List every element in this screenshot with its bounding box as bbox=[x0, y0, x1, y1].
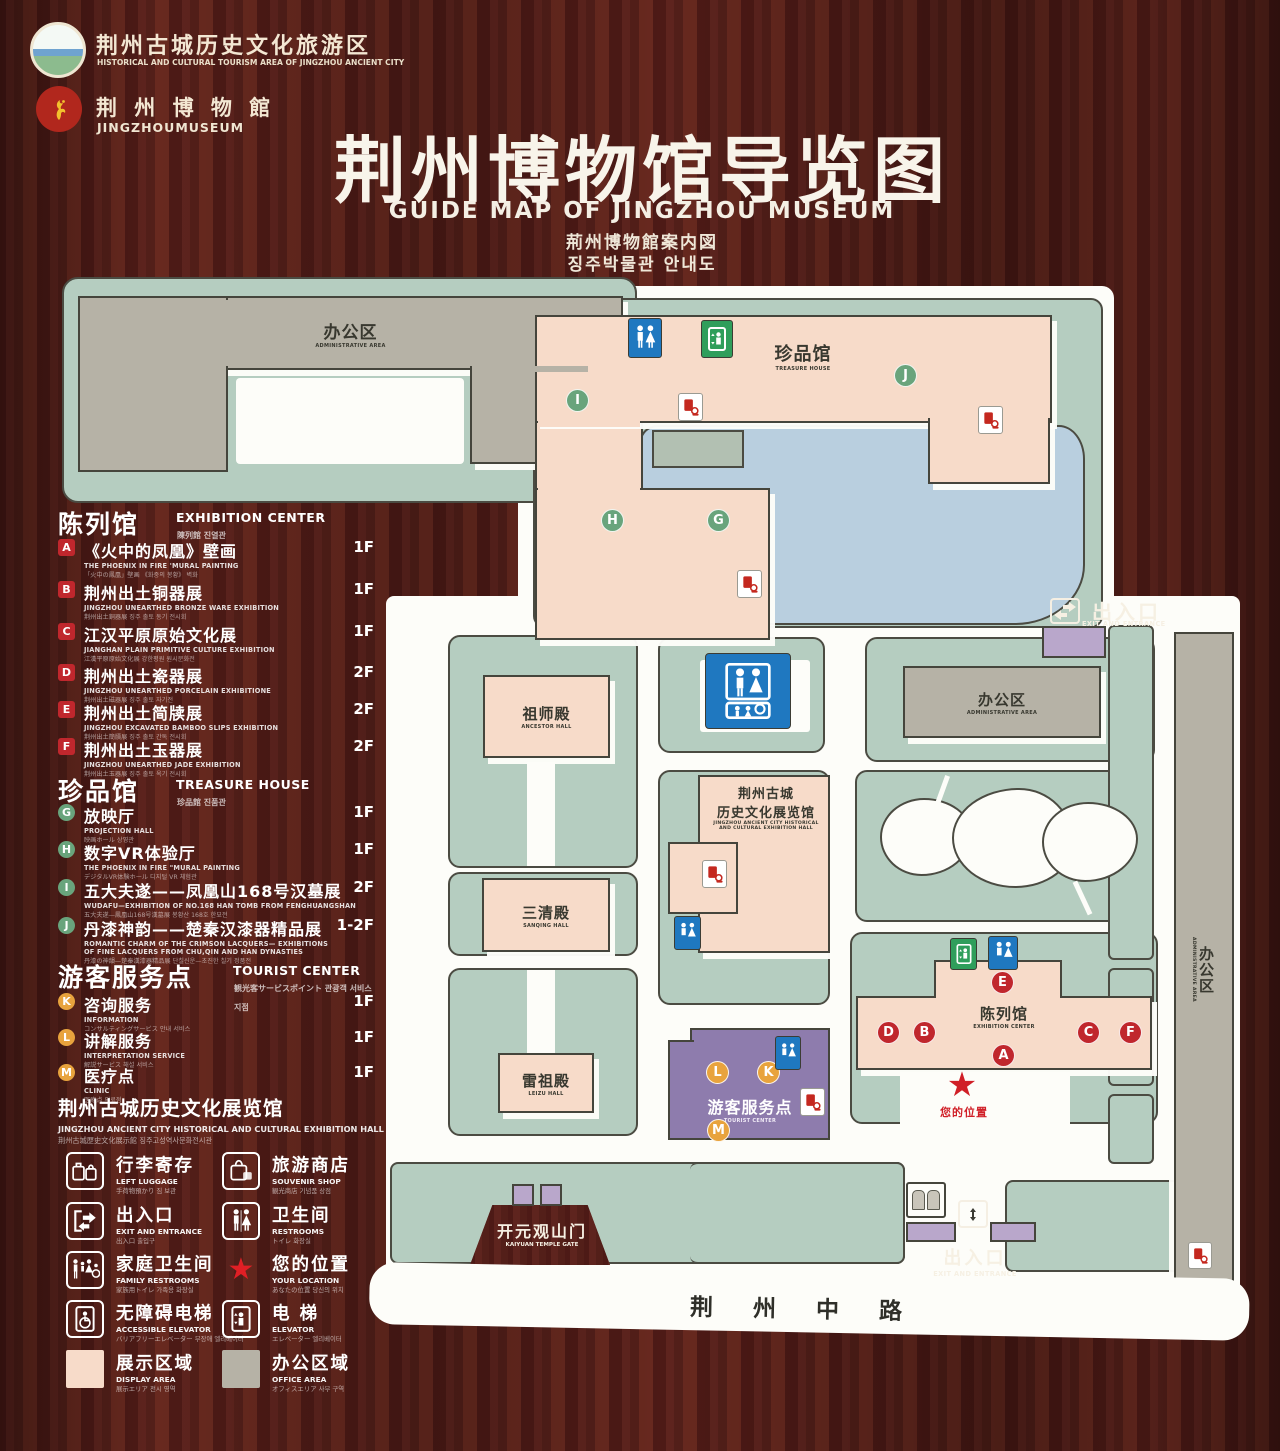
list-item-D: D 荆州出土瓷器展 2F JINGZHOU UNEARTHED PORCELAI… bbox=[58, 663, 376, 704]
map-marker-A: A bbox=[992, 1044, 1015, 1067]
accessible-elevator-icon bbox=[1188, 1242, 1212, 1269]
entrance-gate-block bbox=[990, 1222, 1036, 1242]
section-tourist-center: 游客服务点 bbox=[58, 958, 193, 994]
list-item-C: C 江汉平原原始文化展 1F JIANGHAN PLAIN PRIMITIVE … bbox=[58, 622, 376, 663]
sanqing-hall-building: 三清殿SANQING HALL bbox=[482, 878, 610, 952]
exit-entrance-icon bbox=[1050, 598, 1080, 624]
your-location-icon: ★ bbox=[222, 1251, 260, 1289]
museum-name-en: JINGZHOUMUSEUM bbox=[97, 120, 244, 135]
tourism-area-name-en: HISTORICAL AND CULTURAL TOURISM AREA OF … bbox=[97, 58, 404, 67]
restrooms-icon bbox=[222, 1202, 260, 1240]
map-marker-L: L bbox=[706, 1061, 729, 1084]
left-luggage-icon bbox=[66, 1152, 104, 1190]
east-strip-parcel bbox=[1108, 625, 1154, 960]
map-marker-J: J bbox=[894, 364, 917, 387]
display-area-swatch bbox=[66, 1350, 104, 1388]
family-restrooms-icon bbox=[66, 1251, 104, 1289]
admin-building-east: 办公区ADMINISTRATIVE AREA bbox=[903, 666, 1101, 738]
south-strip-parcel-center bbox=[690, 1162, 905, 1264]
tourism-area-emblem-icon bbox=[30, 22, 86, 78]
restrooms-icon bbox=[705, 653, 791, 729]
legend-office-area: 办公区域OFFICE AREAオフィスエリア 사무 구역 bbox=[222, 1350, 374, 1396]
page-title-en: GUIDE MAP OF JINGZHOU MUSEUM bbox=[389, 198, 896, 224]
exit-label-east-en: EXIT AND ENTRANCE bbox=[1082, 620, 1166, 628]
entrance-gate-block bbox=[1042, 626, 1106, 658]
admin-courtyard bbox=[236, 378, 464, 464]
map-marker-E: E bbox=[991, 971, 1014, 994]
exit-entrance-icon bbox=[66, 1202, 104, 1240]
list-item-K: K 咨询服务 1F INFORMATION コンサルティングサービス 안내 서비… bbox=[58, 992, 376, 1033]
elevator-icon bbox=[950, 938, 977, 970]
hall-note: 荆州古城历史文化展览馆 JINGZHOU ANCIENT CITY HISTOR… bbox=[58, 1092, 384, 1146]
section-exhibition-center: 陈列馆 bbox=[58, 505, 139, 541]
ticket-booth-icon bbox=[906, 1182, 946, 1218]
museum-logo bbox=[36, 86, 82, 132]
museum-name: 荆 州 博 物 館 bbox=[96, 92, 275, 122]
path bbox=[527, 762, 555, 866]
admin-building-east-strip: 办公区 ADMINISTRATIVE AREA bbox=[1174, 632, 1234, 1308]
accessible-elevator-icon bbox=[737, 570, 762, 598]
exhibition-hall-label: 荆州古城 历史文化展览馆 JINGZHOU ANCIENT CITY HISTO… bbox=[713, 783, 818, 831]
legend-accessible-elevator: 无障碍电梯ACCESSIBLE ELEVATORバリアフリーエレベーター 무장애… bbox=[66, 1300, 218, 1346]
restrooms-icon bbox=[775, 1036, 801, 1070]
admin-area-label-vertical: 办公区 ADMINISTRATIVE AREA bbox=[1176, 634, 1232, 1306]
path bbox=[527, 970, 555, 1055]
accessible-elevator-icon bbox=[66, 1300, 104, 1338]
tourism-area-name: 荆州古城历史文化旅游区 bbox=[96, 28, 371, 60]
legend-exit-entrance: 出入口EXIT AND ENTRANCE出入口 출입구 bbox=[66, 1202, 218, 1248]
entrance-gate-block bbox=[906, 1222, 956, 1242]
map-marker-D: D bbox=[877, 1021, 900, 1044]
legend-left-luggage: 行李寄存LEFT LUGGAGE手荷物預かり 짐 보관 bbox=[66, 1152, 218, 1198]
list-item-G: G 放映厅 1F PROJECTION HALL 映画ホール 상영관 bbox=[58, 803, 376, 844]
elevator-icon bbox=[701, 320, 733, 358]
map-marker-H: H bbox=[601, 509, 624, 532]
map-marker-B: B bbox=[913, 1021, 936, 1044]
admin-building-west-wing bbox=[78, 296, 228, 472]
gate-pillar bbox=[540, 1184, 562, 1206]
accessible-elevator-icon bbox=[678, 393, 703, 421]
legend-your-location: ★ 您的位置YOUR LOCATIONあなたの位置 당신의 위치 bbox=[222, 1251, 374, 1297]
map-marker-M: M bbox=[707, 1119, 730, 1142]
list-item-A: A 《火中的凤凰》壁画 1F THE PHOENIX IN FIRE 'MURA… bbox=[58, 538, 376, 579]
accessible-elevator-icon bbox=[800, 1088, 825, 1116]
map-marker-G: G bbox=[707, 509, 730, 532]
legend-display-area: 展示区域DISPLAY AREA展示エリア 전시 영역 bbox=[66, 1350, 218, 1396]
tourism-area-logo bbox=[30, 22, 86, 78]
ancestor-hall-building: 祖师殿ANCESTOR HALL bbox=[483, 675, 610, 758]
list-item-B: B 荆州出土铜器展 1F JINGZHOU UNEARTHED BRONZE W… bbox=[58, 580, 376, 621]
your-location-label: 您的位置 bbox=[940, 1104, 988, 1120]
legend-family-restrooms: 家庭卫生间FAMILY RESTROOMS家族用トイレ 가족용 화장실 bbox=[66, 1251, 218, 1297]
legend-elevator: 电 梯ELEVATORエレベーター 엘리베이터 bbox=[222, 1300, 374, 1346]
list-item-H: H 数字VR体验厅 1F THE PHOENIX IN FIRE "MURAL … bbox=[58, 840, 376, 881]
exit-label-south: 出入口 EXIT AND ENTRANCE bbox=[933, 1244, 1017, 1278]
east-strip-parcel bbox=[1108, 1094, 1154, 1164]
restrooms-icon bbox=[628, 318, 662, 358]
exhibition-center-label: 陈列馆 EXHIBITION CENTER bbox=[973, 1003, 1034, 1030]
exit-entrance-icon bbox=[958, 1200, 988, 1228]
road-label: 荆 州 中 路 bbox=[690, 1288, 919, 1326]
leizu-hall-building: 雷祖殿LEIZU HALL bbox=[498, 1053, 594, 1113]
your-location-icon: ★ bbox=[947, 1068, 977, 1102]
office-area-swatch bbox=[222, 1350, 260, 1388]
map-marker-I: I bbox=[566, 389, 589, 412]
restrooms-icon bbox=[988, 936, 1018, 970]
treasure-house-south-block bbox=[535, 488, 770, 640]
gate-pillar bbox=[512, 1184, 534, 1206]
legend-souvenir-shop: 旅游商店SOUVENIR SHOP観光商店 기념품 상점 bbox=[222, 1152, 374, 1198]
elevator-icon bbox=[222, 1300, 260, 1338]
phoenix-bird-icon bbox=[36, 86, 82, 132]
page-title-kr: 징주박물관 안내도 bbox=[567, 250, 716, 275]
treasure-terrace bbox=[652, 430, 744, 468]
treasure-house-label: 珍品馆 TREASURE HOUSE bbox=[775, 340, 832, 372]
souvenir-shop-icon bbox=[222, 1152, 260, 1190]
list-item-I: I 五大夫遂——凤凰山168号汉墓展 2F WUDAFU—EXHIBITION … bbox=[58, 878, 376, 919]
accessible-elevator-icon bbox=[978, 406, 1003, 434]
restrooms-icon bbox=[674, 916, 701, 950]
list-item-E: E 荆州出土简牍展 2F JINGZHOU EXCAVATED BAMBOO S… bbox=[58, 700, 376, 741]
accessible-elevator-icon bbox=[702, 860, 727, 888]
legend-restrooms: 卫生间RESTROOMSトイレ 화장실 bbox=[222, 1202, 374, 1248]
map-marker-F: F bbox=[1119, 1021, 1142, 1044]
map-marker-C: C bbox=[1077, 1021, 1100, 1044]
legend-sidebar: 陈列馆 EXHIBITION CENTER 陳列館 진열관 A 《火中的凤凰》壁… bbox=[58, 500, 378, 1400]
kaiyuan-gate-label: 开元观山门 KAIYUAN TEMPLE GATE bbox=[497, 1218, 587, 1248]
